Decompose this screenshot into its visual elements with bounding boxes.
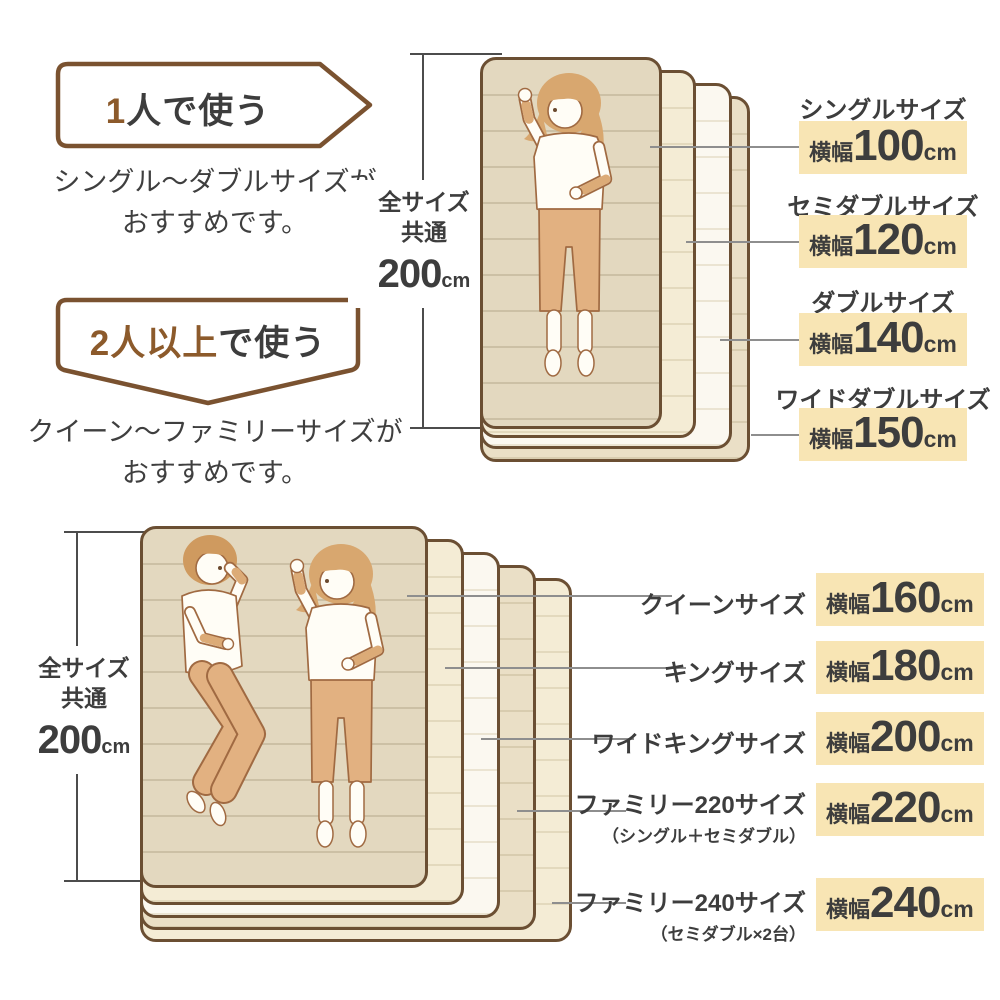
width-unit: cm <box>924 426 957 452</box>
badge-rest-text: 人で使う <box>126 92 270 131</box>
value-king: 横幅180cm <box>816 641 984 694</box>
size-name: ファミリー240サイズ <box>556 883 806 918</box>
measure-text-line2: 共通 <box>348 218 500 248</box>
size-name: シングルサイズ <box>768 90 998 125</box>
width-value: 180 <box>870 641 940 690</box>
width-value: 160 <box>870 573 940 622</box>
width-unit: cm <box>940 801 973 827</box>
width-prefix: 横幅 <box>809 332 853 357</box>
measure-value: 200 <box>378 252 442 296</box>
woman-illustration <box>291 544 379 847</box>
width-value: 220 <box>870 783 940 832</box>
label-king: キングサイズ <box>556 653 806 688</box>
width-value: 140 <box>853 313 923 362</box>
value-queen: 横幅160cm <box>816 573 984 626</box>
size-value-badge: 横幅180cm <box>816 641 984 694</box>
size-value-badge: 横幅240cm <box>816 878 984 931</box>
width-value: 120 <box>853 215 923 264</box>
measure-unit: cm <box>441 270 470 292</box>
width-unit: cm <box>940 730 973 756</box>
multi-recommendation-text: クイーン〜ファミリーサイズが おすすめです。 <box>15 412 415 493</box>
measure-value: 200 <box>38 718 102 762</box>
badge-two-plus: 2人以上で使う <box>54 296 362 408</box>
size-name: クイーンサイズ <box>556 585 806 620</box>
desc-line: クイーン〜ファミリーサイズが <box>27 417 402 447</box>
size-note: （シングル＋セミダブル） <box>556 822 806 847</box>
width-unit: cm <box>924 233 957 259</box>
value-family-240: 横幅240cm <box>816 878 984 931</box>
width-prefix: 横幅 <box>826 731 870 756</box>
badge-two-plus-label: 2人以上で使う <box>54 315 362 366</box>
value-double: 横幅140cm <box>768 313 998 366</box>
value-wide-king: 横幅200cm <box>816 712 984 765</box>
desc-line: シングル〜ダブルサイズが <box>53 167 376 197</box>
width-value: 200 <box>870 712 940 761</box>
width-prefix: 横幅 <box>826 897 870 922</box>
badge-accent-text: 1 <box>106 92 126 131</box>
width-prefix: 横幅 <box>826 802 870 827</box>
value-single: 横幅100cm <box>768 121 998 174</box>
desc-line: おすすめです。 <box>122 208 308 238</box>
width-unit: cm <box>940 659 973 685</box>
width-unit: cm <box>924 139 957 165</box>
label-family-220: ファミリー220サイズ （シングル＋セミダブル） <box>556 785 806 847</box>
badge-one-person-label: 1人で使う <box>54 83 322 134</box>
size-value-badge: 横幅100cm <box>799 121 967 174</box>
bed-size-infographic: 1人で使う シングル〜ダブルサイズが おすすめです。 2人以上で使う クイーン〜… <box>0 0 1000 1000</box>
badge-accent-text: 2人以上 <box>90 324 218 363</box>
width-unit: cm <box>940 591 973 617</box>
size-note: （セミダブル×2台） <box>556 920 806 945</box>
value-family-220: 横幅220cm <box>816 783 984 836</box>
woman-illustration <box>480 57 662 429</box>
value-wide-double: 横幅150cm <box>768 408 998 461</box>
size-name: ファミリー220サイズ <box>556 785 806 820</box>
label-single: シングルサイズ <box>768 90 998 125</box>
badge-rest-text: で使う <box>218 324 326 363</box>
top-measure-label: 全サイズ 共通 200cm <box>348 180 500 308</box>
label-family-240: ファミリー240サイズ （セミダブル×2台） <box>556 883 806 945</box>
width-value: 150 <box>853 408 923 457</box>
measure-text-line1: 全サイズ <box>348 188 500 218</box>
width-prefix: 横幅 <box>809 234 853 259</box>
size-name: ワイドキングサイズ <box>556 724 806 759</box>
width-prefix: 横幅 <box>809 140 853 165</box>
size-value-badge: 横幅120cm <box>799 215 967 268</box>
width-prefix: 横幅 <box>809 427 853 452</box>
man-illustration <box>182 535 252 828</box>
width-unit: cm <box>924 331 957 357</box>
size-name: キングサイズ <box>556 653 806 688</box>
badge-one-person: 1人で使う <box>54 60 376 150</box>
width-value: 240 <box>870 878 940 927</box>
desc-line: おすすめです。 <box>122 458 308 488</box>
label-wide-king: ワイドキングサイズ <box>556 724 806 759</box>
couple-illustration <box>140 526 428 888</box>
width-unit: cm <box>940 896 973 922</box>
size-value-badge: 横幅220cm <box>816 783 984 836</box>
size-value-badge: 横幅140cm <box>799 313 967 366</box>
size-value-badge: 横幅160cm <box>816 573 984 626</box>
label-queen: クイーンサイズ <box>556 585 806 620</box>
size-value-badge: 横幅200cm <box>816 712 984 765</box>
width-prefix: 横幅 <box>826 592 870 617</box>
width-value: 100 <box>853 121 923 170</box>
size-value-badge: 横幅150cm <box>799 408 967 461</box>
value-semi-double: 横幅120cm <box>768 215 998 268</box>
width-prefix: 横幅 <box>826 660 870 685</box>
measure-unit: cm <box>101 736 130 758</box>
